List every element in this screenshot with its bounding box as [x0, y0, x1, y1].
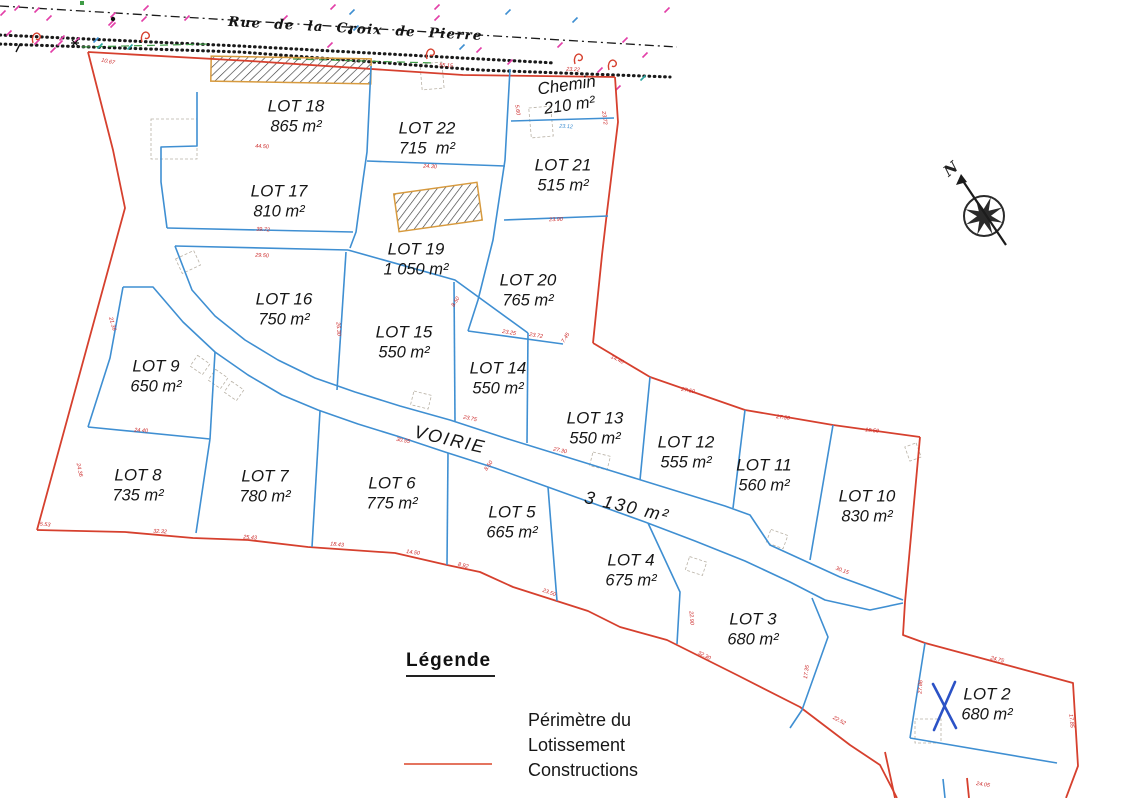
- survey-dot: [111, 17, 115, 21]
- lot-boundary-line: [88, 287, 123, 427]
- lot-label-lot-19: LOT 191 050 m²: [383, 239, 448, 280]
- survey-tick: [350, 10, 355, 15]
- lot-name: LOT 20: [500, 270, 557, 291]
- parking-outline: [208, 369, 228, 388]
- lot-boundary-line: [196, 439, 210, 533]
- lot-area: 830 m²: [839, 507, 896, 527]
- lot-area: 765 m²: [500, 291, 557, 311]
- lot-boundary-line: [810, 425, 833, 560]
- perimeter-line-swatch: [404, 763, 492, 765]
- lot-label-lot-12: LOT 12555 m²: [658, 432, 715, 473]
- lot-boundary-line: [337, 252, 346, 390]
- survey-tick: [51, 48, 56, 53]
- legend-item-perimetre: Périmètre du Lotissement: [528, 708, 658, 758]
- lot-area: 555 m²: [658, 453, 715, 473]
- lot-name: LOT 12: [658, 432, 715, 453]
- survey-tick: [144, 6, 149, 11]
- lot-area: 560 m²: [736, 476, 791, 496]
- lot-name: LOT 10: [839, 486, 896, 507]
- lot-boundary-line: [910, 738, 1057, 763]
- lot-name: LOT 2: [961, 684, 1012, 705]
- compass-rose-icon: [956, 174, 1006, 245]
- legend-items: Périmètre du Lotissement Constructions: [528, 708, 698, 783]
- lot-name: LOT 5: [486, 502, 537, 523]
- lot-label-lot-17: LOT 17810 m²: [251, 181, 308, 222]
- lot-name: LOT 4: [605, 550, 656, 571]
- measurement-label: 27.86: [918, 680, 925, 694]
- measurement-label: 26.30: [335, 322, 342, 336]
- survey-tick: [328, 43, 333, 48]
- perimeter-line: [37, 52, 125, 530]
- lot-boundary-line: [790, 598, 828, 728]
- lot-boundary-line: [447, 453, 448, 565]
- lot-boundary-line: [511, 118, 614, 121]
- lot-name: LOT 11: [736, 455, 791, 476]
- survey-tick: [142, 17, 147, 22]
- lot-boundary-line: [312, 411, 320, 547]
- survey-tick: [111, 13, 116, 18]
- measurement-label: 22.90: [688, 611, 695, 625]
- lot-area: 515 m²: [535, 176, 592, 196]
- lot-label-lot-2: LOT 2680 m²: [961, 684, 1012, 725]
- lot-boundary-line: [350, 66, 371, 248]
- lot-name: LOT 3: [727, 609, 778, 630]
- hydrant-hook-icon: [608, 60, 616, 70]
- measurement-label: 55.15: [439, 63, 453, 70]
- perimeter-line: [967, 778, 969, 798]
- lot-name: LOT 9: [130, 356, 181, 377]
- measurement-label: 44.50: [255, 144, 269, 151]
- lot-label-lot-13: LOT 13550 m²: [567, 408, 624, 449]
- lot-name: LOT 16: [256, 289, 313, 310]
- lot-area: 780 m²: [239, 487, 290, 507]
- measurement-label: 24.30: [423, 164, 437, 171]
- compass-star: [965, 197, 1003, 235]
- compass-needle: [961, 178, 1006, 245]
- measurement-label: 25.43: [243, 535, 257, 542]
- lot-label-lot-21: LOT 21515 m²: [535, 155, 592, 196]
- lot-name: LOT 13: [567, 408, 624, 429]
- survey-tick: [185, 16, 190, 21]
- survey-tick: [477, 48, 482, 53]
- lot-label-lot-9: LOT 9650 m²: [130, 356, 181, 397]
- lot-name: LOT 15: [376, 322, 433, 343]
- survey-tick: [1, 11, 6, 16]
- lot-name: LOT 17: [251, 181, 308, 202]
- lot-area: 775 m²: [366, 494, 417, 514]
- construction-hatch: [394, 182, 482, 231]
- parking-outline: [151, 119, 197, 159]
- lot-name: LOT 21: [535, 155, 592, 176]
- survey-tick: [35, 8, 40, 13]
- measurement-label: 5.53: [39, 522, 50, 529]
- lot-area: 865 m²: [268, 117, 325, 137]
- perimeter-line: [593, 343, 920, 437]
- lot-area: 810 m²: [251, 202, 308, 222]
- measurement-label: 23.12: [559, 124, 573, 131]
- lot-boundary-line: [943, 779, 945, 798]
- lot-boundary-line: [175, 246, 348, 250]
- survey-tick: [665, 8, 670, 13]
- parking-outline: [190, 355, 210, 374]
- lot-label-lot-20: LOT 20765 m²: [500, 270, 557, 311]
- lot-label-lot-16: LOT 16750 m²: [256, 289, 313, 330]
- lot-label-lot-3: LOT 3680 m²: [727, 609, 778, 650]
- lot-area: 550 m²: [376, 343, 433, 363]
- lot-area: 550 m²: [470, 379, 527, 399]
- lot-boundary-line: [527, 333, 528, 443]
- hydrant-hook-icon: [574, 54, 582, 64]
- parking-outline: [766, 529, 788, 548]
- lot-area: 750 m²: [256, 310, 313, 330]
- lot-label-lot-8: LOT 8735 m²: [112, 465, 163, 506]
- lot-label-lot-4: LOT 4675 m²: [605, 550, 656, 591]
- lot-label-lot-6: LOT 6775 m²: [366, 473, 417, 514]
- measurement-label: 39.72: [256, 227, 270, 234]
- lot-name: LOT 8: [112, 465, 163, 486]
- perimeter-line: [885, 752, 895, 798]
- measurement-label: 19.50: [865, 427, 879, 434]
- lot-area: 1 050 m²: [383, 260, 448, 280]
- survey-tick: [435, 5, 440, 10]
- lot-boundary-line: [210, 352, 215, 439]
- measurement-label: 5.60: [513, 104, 520, 115]
- parking-outline: [176, 251, 201, 274]
- parking-outline: [224, 381, 244, 400]
- lot-boundary-line: [88, 427, 210, 439]
- survey-tick: [573, 18, 578, 23]
- lot-name: LOT 7: [239, 466, 290, 487]
- lot-boundary-line: [548, 487, 557, 601]
- lot-label-lot-5: LOT 5665 m²: [486, 502, 537, 543]
- survey-tick: [460, 45, 465, 50]
- legend-title: Légende: [406, 650, 495, 677]
- lot-area: 680 m²: [961, 705, 1012, 725]
- measurement-label: 23.22: [566, 67, 580, 74]
- survey-tick: [331, 5, 336, 10]
- lot-area: 735 m²: [112, 486, 163, 506]
- survey-tick: [598, 68, 603, 73]
- lot-label-lot-10: LOT 10830 m²: [839, 486, 896, 527]
- survey-tick: [643, 53, 648, 58]
- legend-item-constructions: Constructions: [528, 758, 698, 783]
- parking-outline: [411, 391, 432, 409]
- survey-tick: [15, 6, 20, 11]
- measurement-label: 18.43: [330, 541, 344, 548]
- lot-name: LOT 18: [268, 96, 325, 117]
- subdivision-plan: Rue de la Croix de Pierre LOT 18865 m²LO…: [0, 0, 1137, 798]
- measurement-label: 24.40: [134, 428, 148, 435]
- lot-label-lot-15: LOT 15550 m²: [376, 322, 433, 363]
- green-square-mark: [80, 1, 84, 5]
- plan-drawing: [0, 0, 1137, 798]
- lot-label-lot-22: LOT 22715 m²: [399, 118, 456, 159]
- lot-label-lot-18: LOT 18865 m²: [268, 96, 325, 137]
- lot-area: 650 m²: [130, 377, 181, 397]
- survey-tick: [506, 10, 511, 15]
- measurement-label: 23.90: [549, 217, 563, 223]
- measurement-label: 17.85: [1067, 714, 1074, 728]
- lot-boundary-line: [161, 92, 197, 228]
- lot-label-lot-7: LOT 7780 m²: [239, 466, 290, 507]
- survey-tick: [435, 16, 440, 21]
- survey-tick: [558, 43, 563, 48]
- survey-tick: [623, 38, 628, 43]
- lot-label-chemin: Chemin210 m²: [536, 71, 600, 120]
- parking-outline: [685, 557, 706, 576]
- lot-area: 680 m²: [727, 630, 778, 650]
- lot-area: 550 m²: [567, 429, 624, 449]
- lot-boundary-line: [640, 377, 650, 480]
- lot-area: 715 m²: [399, 139, 456, 159]
- lot-label-lot-14: LOT 14550 m²: [470, 358, 527, 399]
- survey-tick: [47, 16, 52, 21]
- lot-name: LOT 22: [399, 118, 456, 139]
- lot-name: LOT 14: [470, 358, 527, 379]
- lot-name: LOT 6: [366, 473, 417, 494]
- perimeter-line: [903, 437, 1078, 798]
- lot-name: LOT 19: [383, 239, 448, 260]
- measurement-label: 32.32: [153, 529, 167, 536]
- lot-label-lot-11: LOT 11560 m²: [736, 455, 791, 496]
- measurement-label: 29.50: [255, 253, 269, 260]
- lot-area: 675 m²: [605, 571, 656, 591]
- lot-area: 665 m²: [486, 523, 537, 543]
